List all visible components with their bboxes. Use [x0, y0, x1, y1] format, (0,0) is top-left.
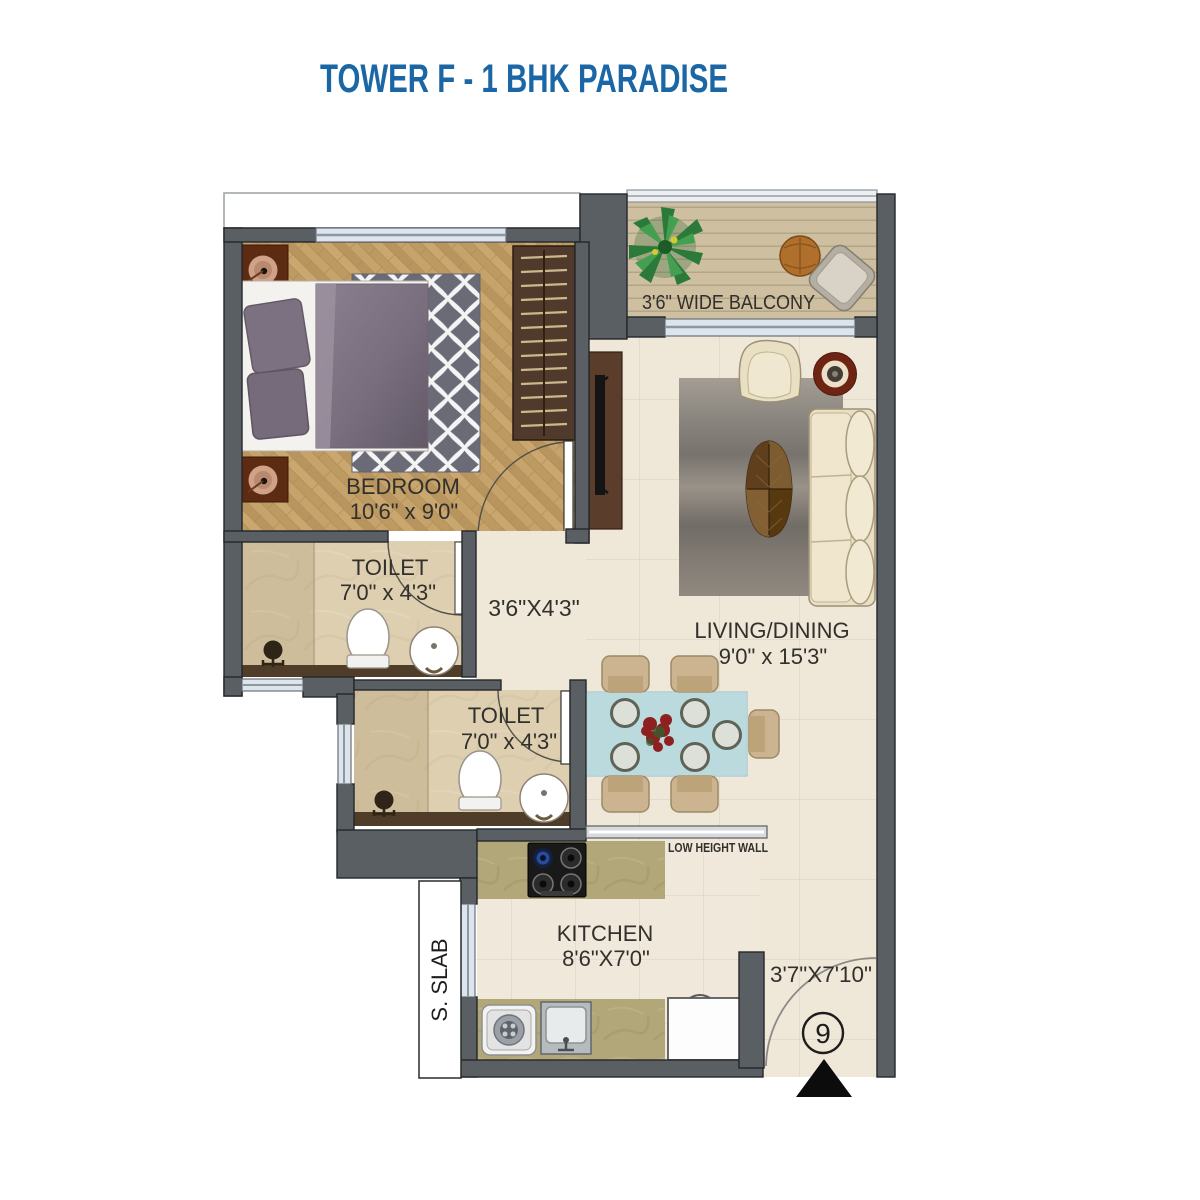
svg-text:S. SLAB: S. SLAB [427, 938, 452, 1021]
svg-text:3'6"X4'3": 3'6"X4'3" [488, 595, 580, 621]
svg-text:10'6" x 9'0": 10'6" x 9'0" [350, 499, 458, 524]
svg-text:LIVING/DINING: LIVING/DINING [694, 618, 849, 643]
svg-text:BEDROOM: BEDROOM [346, 474, 460, 499]
svg-text:3'7"X7'10": 3'7"X7'10" [770, 962, 872, 987]
svg-text:7'0" x 4'3": 7'0" x 4'3" [340, 580, 436, 605]
svg-text:9'0" x 15'3": 9'0" x 15'3" [719, 644, 827, 669]
svg-text:TOWER F - 1 BHK PARADISE: TOWER F - 1 BHK PARADISE [320, 57, 728, 101]
svg-text:LOW HEIGHT WALL: LOW HEIGHT WALL [668, 841, 768, 855]
svg-text:TOILET: TOILET [468, 703, 545, 728]
svg-text:TOILET: TOILET [352, 555, 429, 580]
svg-text:KITCHEN: KITCHEN [557, 921, 654, 946]
svg-text:9: 9 [815, 1018, 831, 1049]
svg-text:7'0" x 4'3": 7'0" x 4'3" [461, 729, 557, 754]
svg-text:3'6" WIDE BALCONY: 3'6" WIDE BALCONY [642, 292, 815, 314]
svg-text:8'6"X7'0": 8'6"X7'0" [562, 946, 650, 971]
